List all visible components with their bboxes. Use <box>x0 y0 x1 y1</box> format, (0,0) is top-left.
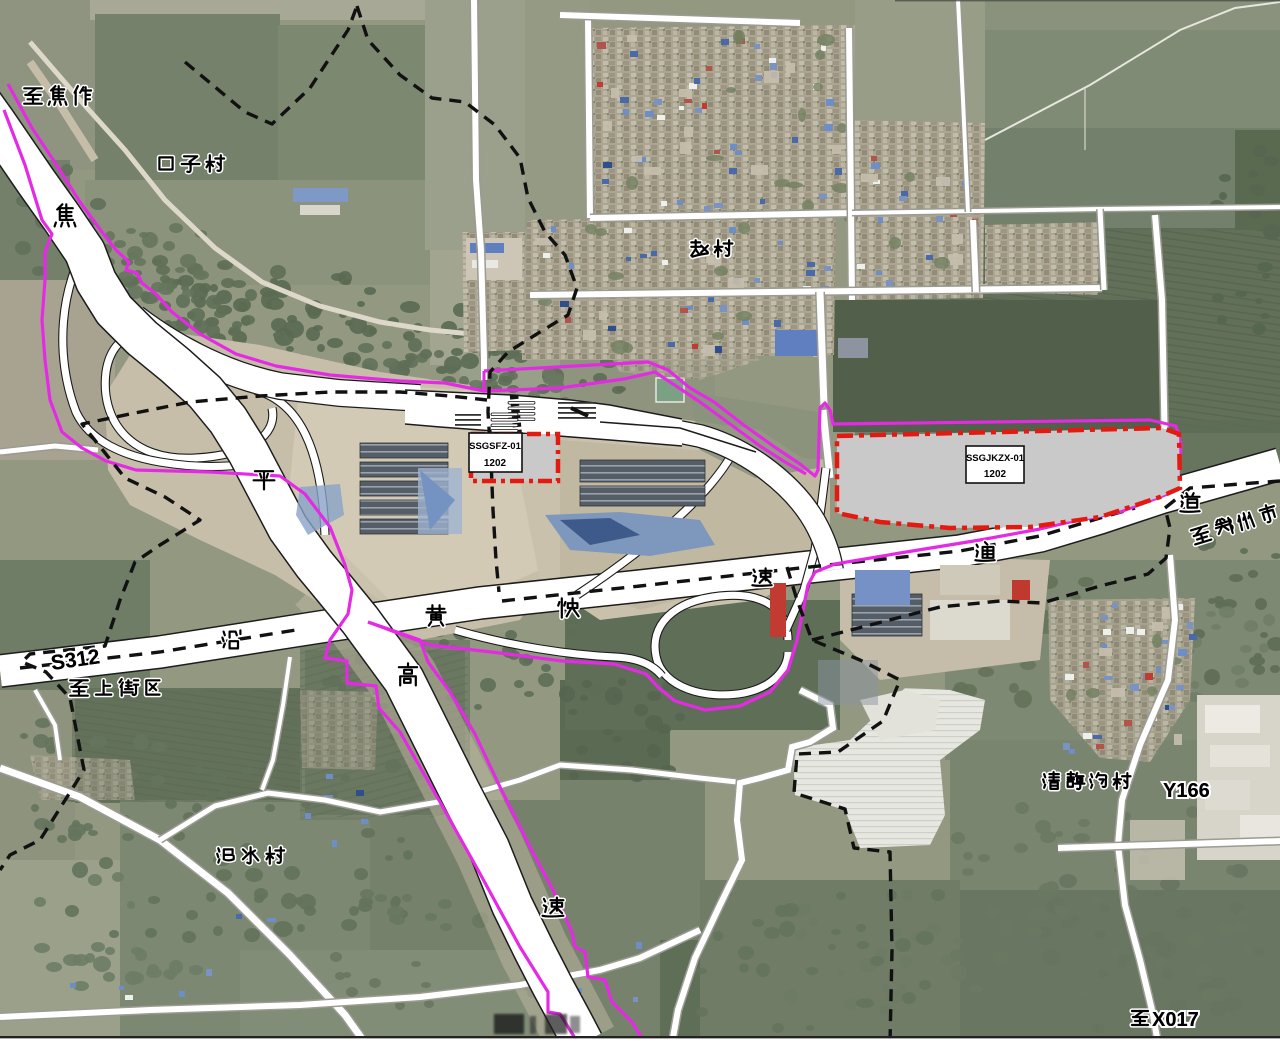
svg-text:SSGJKZX-01: SSGJKZX-01 <box>966 453 1025 464</box>
svg-text:SSGSFZ-01: SSGSFZ-01 <box>469 441 521 452</box>
svg-text:X017: X017 <box>1152 1009 1199 1031</box>
svg-text:Y166: Y166 <box>1163 780 1210 802</box>
svg-text:1202: 1202 <box>484 458 507 469</box>
svg-text:1202: 1202 <box>984 469 1007 480</box>
